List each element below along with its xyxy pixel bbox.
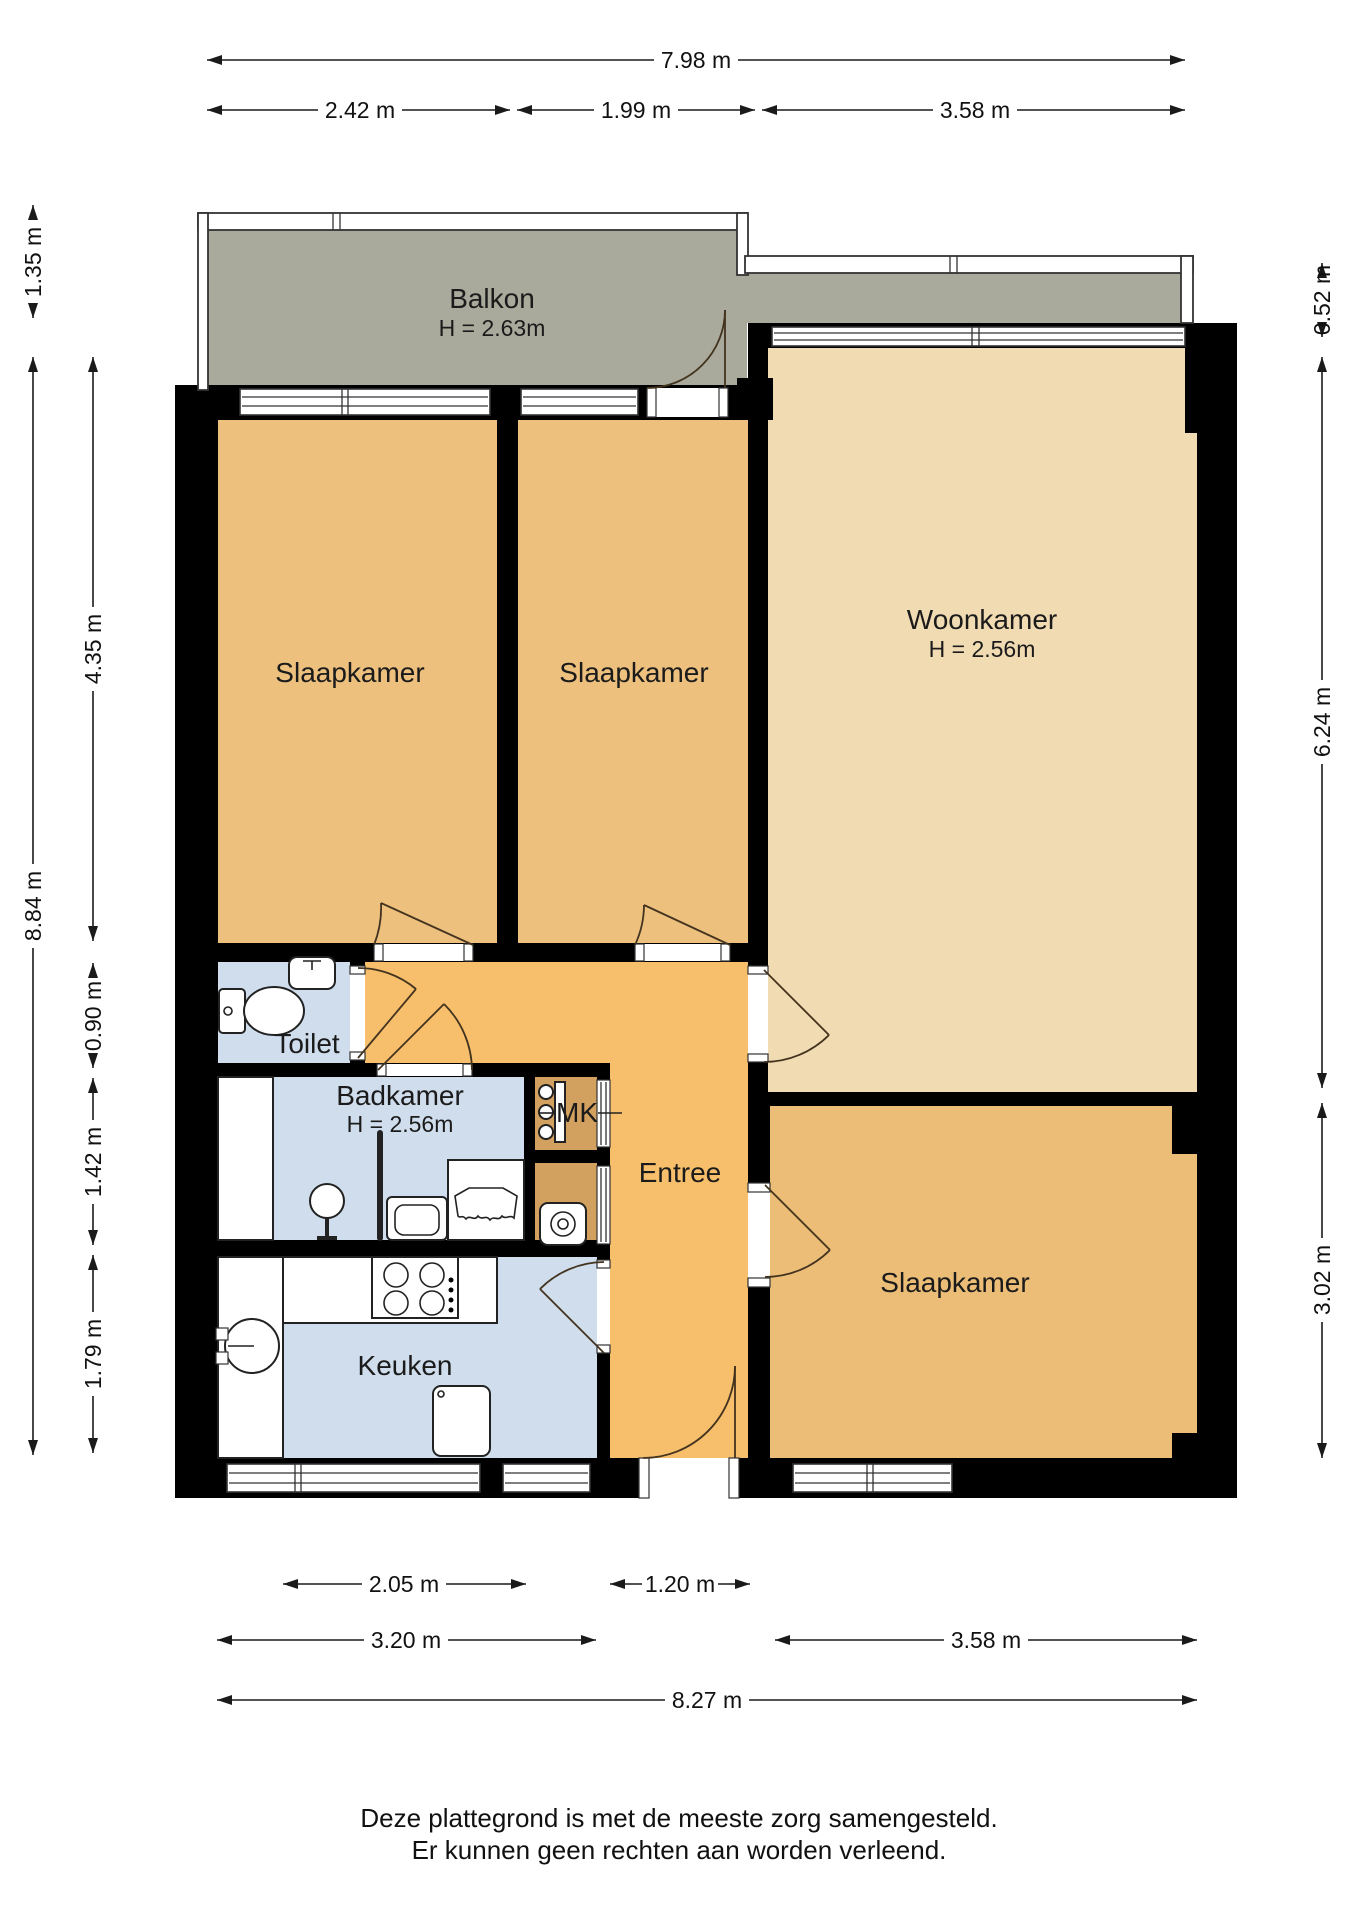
boiler-icon	[540, 1203, 586, 1245]
dimension-label: 6.24 m	[1309, 687, 1335, 757]
footer-line-2: Er kunnen geen rechten aan worden verlee…	[412, 1835, 947, 1865]
label-balkon-height: H = 2.63m	[439, 315, 546, 341]
wall-right-upper	[1197, 323, 1237, 1092]
dimension-label: 0.52 m	[1309, 265, 1335, 335]
dimension-label: 1.99 m	[601, 97, 671, 123]
floorplan-page: 7.98 m 2.42 m 1.99 m 3.58 m 1.35 m 4.35 …	[0, 0, 1358, 1920]
wall-badkamer-right	[524, 1077, 535, 1247]
wall-bedroom-divider	[497, 385, 518, 943]
label-badkamer-height: H = 2.56m	[347, 1111, 454, 1137]
window-keuken-left	[227, 1464, 480, 1492]
footer-line-1: Deze plattegrond is met de meeste zorg s…	[360, 1803, 997, 1833]
stove-icon	[372, 1257, 458, 1318]
dimension-label: 7.98 m	[661, 47, 731, 73]
label-balkon: Balkon	[449, 283, 535, 314]
window-slaapkamer-2	[521, 389, 638, 415]
label-slaapkamer-1: Slaapkamer	[275, 657, 424, 688]
bathtub-icon	[448, 1160, 524, 1240]
dimension-label: 4.35 m	[80, 614, 106, 684]
window-woonkamer	[772, 327, 1185, 346]
dimension-label: 1.20 m	[645, 1571, 715, 1597]
room-woonkamer	[768, 330, 1197, 1092]
label-entree: Entree	[639, 1157, 722, 1188]
dimension-label: 1.79 m	[80, 1319, 106, 1389]
dimension-label: 1.35 m	[20, 227, 46, 297]
washing-machine-icon	[387, 1197, 447, 1240]
washbasin-icon	[310, 1184, 344, 1218]
railing-top-left	[198, 213, 747, 230]
wall-slaapkamer3-top	[748, 1092, 1197, 1106]
label-slaapkamer-3: Slaapkamer	[880, 1267, 1029, 1298]
dimension-label: 2.05 m	[369, 1571, 439, 1597]
label-woonkamer-height: H = 2.56m	[929, 636, 1036, 662]
dimension-label: 2.42 m	[325, 97, 395, 123]
footer-disclaimer: Deze plattegrond is met de meeste zorg s…	[360, 1803, 997, 1865]
railing-top-right	[745, 256, 1193, 273]
dimension-label: 3.58 m	[940, 97, 1010, 123]
label-keuken: Keuken	[358, 1350, 453, 1381]
dimension-label: 8.84 m	[20, 871, 46, 941]
floorplan-svg: 7.98 m 2.42 m 1.99 m 3.58 m 1.35 m 4.35 …	[0, 0, 1358, 1920]
fridge-icon	[433, 1386, 490, 1456]
bathroom-closet	[218, 1077, 273, 1240]
label-slaapkamer-2: Slaapkamer	[559, 657, 708, 688]
dimension-label: 1.42 m	[80, 1127, 106, 1197]
railing-end-left	[198, 213, 208, 390]
dimension-label: 8.27 m	[672, 1687, 742, 1713]
label-mk: MK	[556, 1097, 598, 1128]
label-badkamer: Badkamer	[336, 1080, 464, 1111]
window-slaapkamer-1	[240, 389, 490, 415]
wall-balconydoor-pier	[737, 378, 773, 420]
label-toilet: Toilet	[274, 1028, 340, 1059]
label-woonkamer: Woonkamer	[907, 604, 1057, 635]
wall-notch-bottom	[1172, 1433, 1199, 1463]
dimension-label: 0.90 m	[80, 981, 106, 1051]
wall-left	[175, 385, 218, 1498]
wall-right-lower	[1197, 1092, 1237, 1498]
window-slaapkamer-3	[793, 1464, 952, 1492]
railing-end-right	[1181, 256, 1193, 323]
dimension-label: 3.02 m	[1309, 1245, 1335, 1315]
window-keuken-right	[503, 1464, 590, 1492]
dimension-label: 3.58 m	[951, 1627, 1021, 1653]
dimension-label: 3.20 m	[371, 1627, 441, 1653]
